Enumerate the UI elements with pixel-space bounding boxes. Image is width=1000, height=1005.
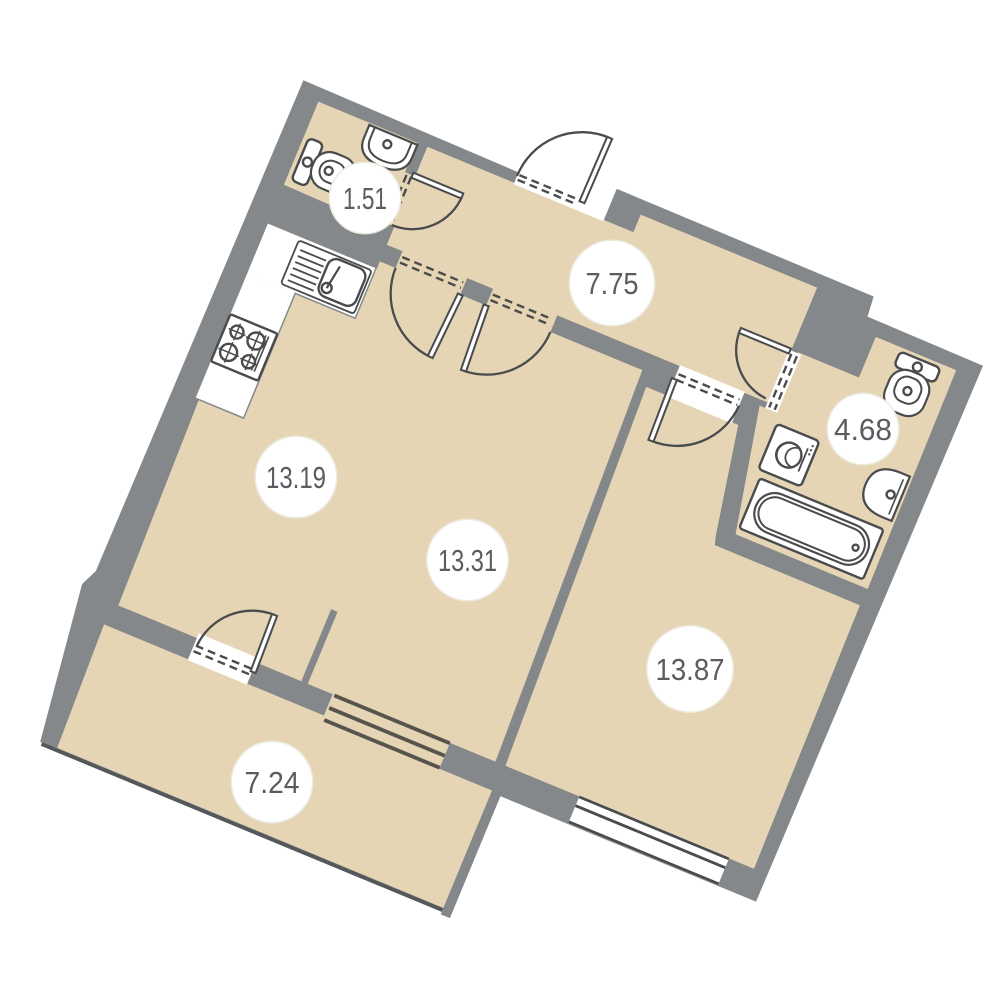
svg-text:7.24: 7.24 xyxy=(245,765,300,800)
svg-text:13.87: 13.87 xyxy=(656,652,725,687)
svg-text:4.68: 4.68 xyxy=(834,412,892,447)
svg-text:1.51: 1.51 xyxy=(343,181,387,216)
svg-text:13.19: 13.19 xyxy=(266,460,326,495)
svg-text:13.31: 13.31 xyxy=(438,543,497,578)
svg-text:7.75: 7.75 xyxy=(586,266,639,301)
